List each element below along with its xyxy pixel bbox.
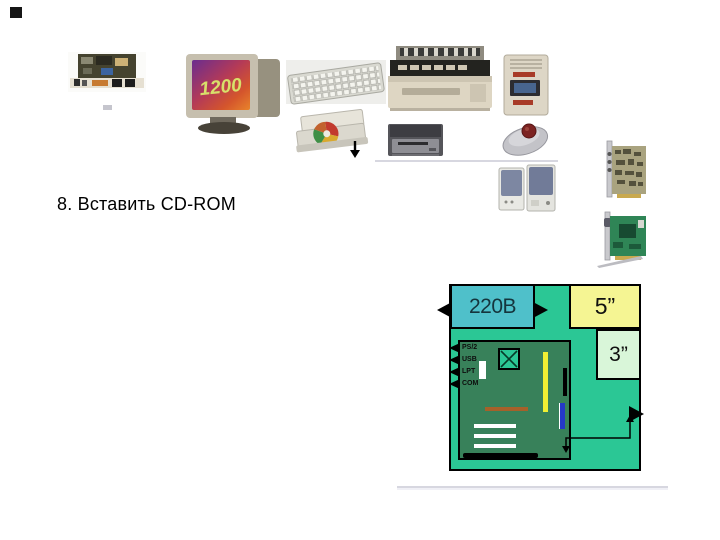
monitor-screen-text: 1200	[199, 75, 244, 100]
motherboard-photo	[68, 52, 146, 92]
down-arrow-icon	[349, 141, 361, 158]
small-smudge-mark	[103, 105, 112, 110]
sound-card-photo	[591, 140, 649, 204]
slide-bottom-line	[397, 486, 668, 488]
video-card-photo	[591, 210, 649, 268]
printer-photo	[386, 44, 494, 121]
slide-corner-marker	[10, 7, 22, 18]
monitor-photo: 1200	[182, 51, 284, 135]
power-unit-photo	[502, 54, 550, 116]
keyboard-photo	[286, 58, 386, 106]
speakers-photo	[496, 162, 558, 214]
cable-connector-line	[436, 280, 652, 482]
cd-rom-drive-photo	[293, 109, 373, 161]
floppy-drive-photo	[387, 121, 444, 160]
pc-connection-diagram: 220В 5” 3” PS/2 USB LPT COM	[436, 280, 652, 482]
presentation-slide: 1200	[0, 0, 720, 540]
case-arrow-out-icon	[629, 406, 644, 422]
mouse-photo	[496, 120, 554, 158]
slide-caption: 8. Вставить CD-ROM	[57, 194, 236, 215]
